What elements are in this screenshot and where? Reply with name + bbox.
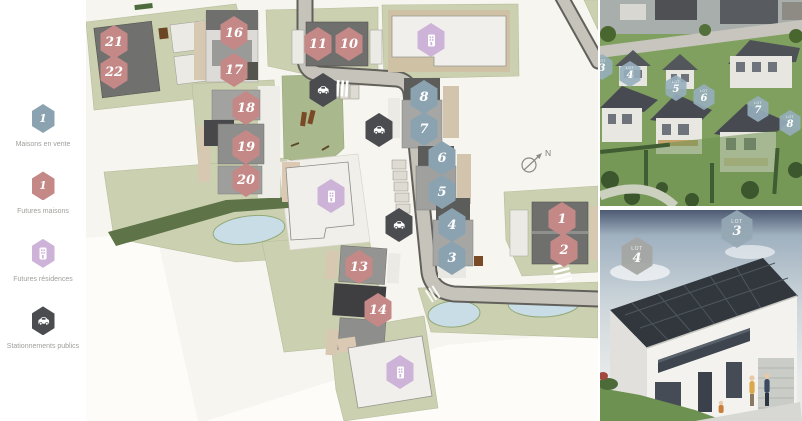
- site-plan-map[interactable]: N 212216171110181920876543131412: [86, 0, 598, 421]
- aerial-photo[interactable]: LOT3LOT4LOT5LOT6LOT7LOT8: [600, 0, 802, 206]
- legend-panel: 1Maisons en vente1Futures maisonsFutures…: [0, 0, 86, 421]
- legend-label: Futures maisons: [6, 207, 80, 216]
- lot-number: 17: [225, 63, 243, 78]
- lot-number: 13: [350, 260, 368, 275]
- legend-label: Stationnements publics: [6, 342, 80, 351]
- north-label: N: [545, 148, 551, 158]
- lot-number: 3: [447, 251, 456, 266]
- lot-number: 14: [369, 303, 387, 318]
- lot-number: 5: [437, 185, 446, 200]
- building-icon: [395, 365, 405, 380]
- building-icon: [426, 33, 436, 48]
- legend-residence-hexagon: [32, 239, 55, 268]
- lot-number: 21: [105, 35, 123, 50]
- car-icon: [373, 125, 386, 135]
- legend-item-parking: Stationnements publics: [3, 306, 83, 351]
- lot-number: 3: [600, 63, 605, 74]
- legend-future-hexagon: 1: [32, 171, 55, 200]
- site-plan-app: 1Maisons en vente1Futures maisonsFutures…: [0, 0, 802, 421]
- lot-number: 16: [225, 26, 243, 41]
- lot-number: 7: [755, 105, 762, 116]
- house-photo[interactable]: LOT4LOT3: [600, 210, 802, 421]
- lot-number: 10: [340, 37, 358, 52]
- lot-number: 22: [105, 65, 123, 80]
- photo-panel: LOT3LOT4LOT5LOT6LOT7LOT8: [598, 0, 802, 421]
- lot-number: 4: [632, 252, 641, 266]
- legend-glyph: 1: [39, 179, 47, 192]
- lot-number: 6: [437, 151, 446, 166]
- legend-parking-hexagon: [32, 306, 55, 335]
- lot-number: 4: [627, 70, 634, 81]
- lot-number: 20: [237, 173, 255, 188]
- lot-number: 1: [557, 212, 566, 227]
- car-icon: [317, 85, 330, 95]
- lot-number: 2: [559, 243, 568, 258]
- legend-item-residence: Futures résidences: [3, 239, 83, 284]
- lot-number: 6: [701, 93, 708, 104]
- lot-number: 3: [732, 225, 741, 239]
- legend-glyph: 1: [39, 112, 47, 125]
- lot-number: 8: [787, 119, 794, 130]
- lot-number: 19: [237, 140, 255, 155]
- legend-label: Futures résidences: [6, 275, 80, 284]
- lot-number: 11: [309, 37, 327, 52]
- site-plan-drawing: N: [86, 0, 598, 421]
- legend-label: Maisons en vente: [6, 140, 80, 149]
- lot-number: 18: [237, 101, 255, 116]
- legend-item-future: 1Futures maisons: [3, 171, 83, 216]
- legend-item-sale: 1Maisons en vente: [3, 104, 83, 149]
- building-icon: [38, 246, 48, 261]
- lot-number: 8: [419, 90, 428, 105]
- car-icon: [37, 316, 50, 326]
- lot-number: 5: [673, 84, 680, 95]
- building-icon: [326, 189, 336, 204]
- lot-number: 7: [419, 122, 428, 137]
- car-icon: [393, 220, 406, 230]
- legend-sale-hexagon: 1: [32, 104, 55, 133]
- lot-number: 4: [447, 218, 456, 233]
